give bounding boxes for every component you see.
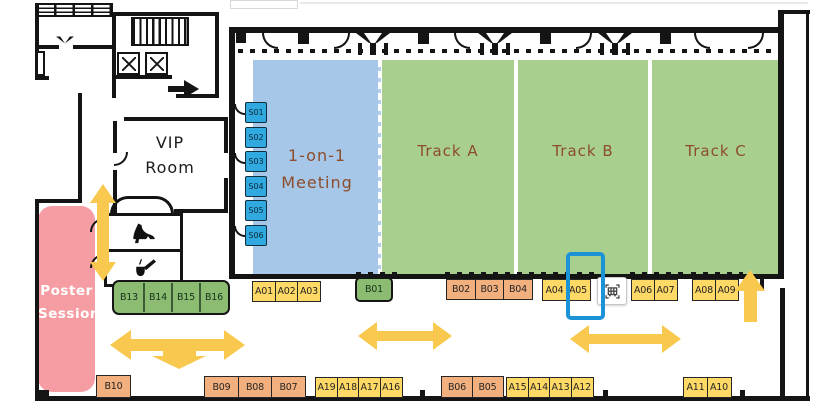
selected-booth-highlight	[566, 252, 605, 320]
flow-arrow-horizontal	[358, 322, 452, 350]
flow-arrow-vertical	[90, 184, 116, 281]
conference-floor-plan: 1-on-1 Meeting Track A Track B Track C P…	[0, 0, 814, 407]
cart-icon	[604, 283, 621, 300]
plan-direction-arrow	[168, 80, 199, 98]
flow-arrow-up	[735, 270, 765, 322]
flow-arrow-horizontal	[570, 325, 681, 353]
flow-arrow-down	[152, 348, 206, 369]
flow-arrows-layer	[0, 0, 814, 407]
